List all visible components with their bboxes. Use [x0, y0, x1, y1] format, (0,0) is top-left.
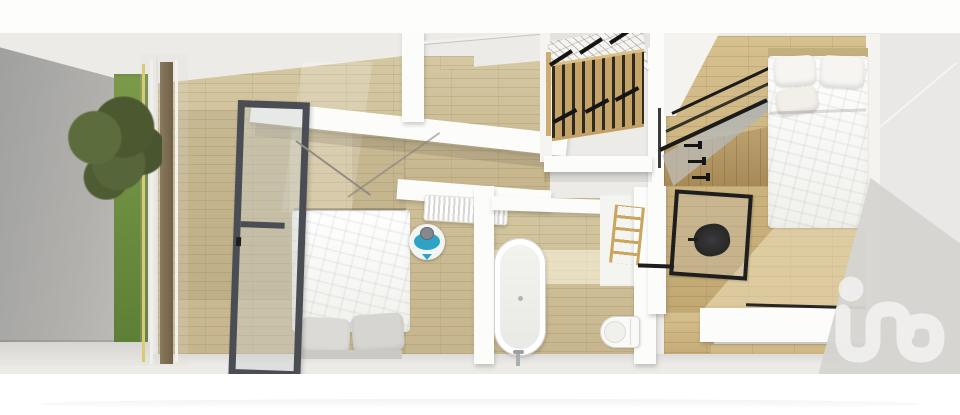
wall-under-stairs	[544, 156, 652, 172]
person-marker-head	[420, 227, 434, 240]
wall-hook-3-cap	[706, 173, 710, 181]
toilet-seat	[604, 321, 626, 343]
bed-left-fold-line	[294, 208, 406, 211]
watermark-in-stroke	[843, 309, 937, 355]
watermark-i-dot	[839, 277, 864, 302]
wall-under-stairs-shadow	[544, 172, 652, 182]
bed-left	[292, 208, 410, 360]
door-mullion	[241, 221, 285, 229]
person-marker-direction-arrow	[422, 254, 432, 260]
bathtub-drain	[518, 296, 523, 301]
wall-bathroom-left	[474, 186, 494, 364]
canopy-post	[658, 108, 661, 168]
toilet	[600, 316, 640, 348]
foundation-slab-left	[0, 342, 150, 366]
desk-chair-arm	[688, 238, 698, 241]
bottom-soft-shadow	[40, 399, 920, 409]
watermark-logo	[826, 262, 960, 380]
bathtub	[494, 238, 546, 356]
bathtub-faucet	[516, 352, 520, 366]
wall-hook-2-cap	[702, 157, 706, 165]
ladder-towel-rack	[609, 205, 645, 266]
door-handle	[236, 237, 241, 246]
wall-hook-1-cap	[698, 141, 702, 149]
tree-foliage	[66, 96, 162, 200]
floorplan-render	[0, 0, 960, 415]
bed-right-pillow-2	[819, 55, 865, 89]
wall-landing-left	[402, 30, 424, 122]
stair-balusters	[552, 49, 644, 142]
bed-left-pillow-2	[351, 312, 406, 354]
bed-right	[768, 48, 868, 230]
bathtub-faucet-knob	[513, 350, 524, 354]
staircase	[546, 26, 650, 152]
person-marker	[409, 224, 445, 260]
toilet-tank-line	[630, 319, 631, 345]
facade-frame-line-3	[175, 60, 178, 362]
bed-left-frame	[300, 350, 402, 359]
bed-right-pillow-1	[773, 55, 817, 88]
top-white-band	[0, 0, 960, 33]
